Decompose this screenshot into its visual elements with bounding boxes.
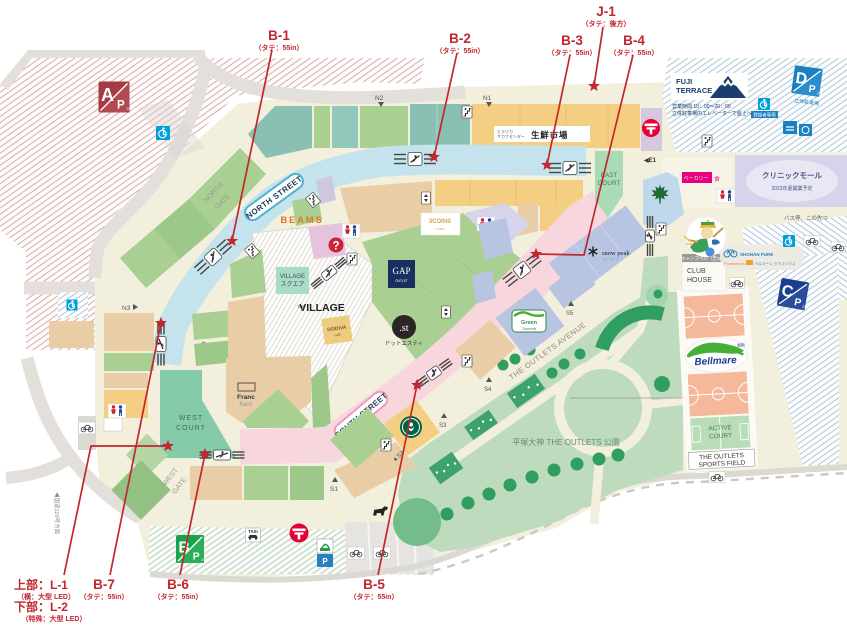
svg-text:◀国道129号方面: ◀国道129号方面 [53,492,61,535]
svg-text:snow peak: snow peak [602,250,630,257]
svg-text:下部：L-2: 下部：L-2 [14,599,68,614]
svg-text:（タテ：55in）: （タテ：55in） [435,46,484,55]
svg-text:A: A [101,85,114,105]
svg-text:Franc: Franc [237,394,255,401]
svg-text:2023年夏開業予定: 2023年夏開業予定 [771,185,812,192]
svg-text:B-5: B-5 [363,577,385,592]
svg-text:B-4: B-4 [623,33,645,48]
svg-text:湘南: 湘南 [737,341,745,347]
svg-text:TERRACE: TERRACE [676,86,712,95]
svg-text:S1: S1 [330,486,338,493]
svg-text:平塚大神 THE OUTLETS 公園: 平塚大神 THE OUTLETS 公園 [512,437,620,447]
svg-text:D: D [794,70,808,88]
svg-text:クリニックモール: クリニックモール [762,170,822,180]
svg-text:生鮮市場: 生鮮市場 [531,130,568,140]
svg-text:B-7: B-7 [93,577,115,592]
svg-text:COURT: COURT [709,432,732,440]
svg-text:B-2: B-2 [449,31,471,46]
svg-text:CLUB: CLUB [687,268,706,275]
svg-text:+plus: +plus [436,227,445,231]
svg-text:（タテ：後方）: （タテ：後方） [582,19,631,28]
svg-text:N1: N1 [483,95,492,102]
svg-text:（特殊：大型 LED）: （特殊：大型 LED） [22,614,87,623]
svg-text:（タテ：55in）: （タテ：55in） [254,43,303,52]
svg-text:Powered by: Powered by [724,261,745,266]
svg-text:Summit: Summit [522,326,536,331]
svg-text:SHONAN PURE: SHONAN PURE [740,252,773,257]
svg-text:S5: S5 [566,311,574,317]
svg-text:VILLAGE: VILLAGE [280,274,305,280]
svg-text:HOUSE: HOUSE [687,277,712,284]
svg-text:franc: franc [239,402,252,408]
svg-text:N3: N3 [122,305,131,312]
svg-text:WEST: WEST [179,415,203,422]
svg-text:J-1: J-1 [596,4,616,19]
svg-text:VILLAGE: VILLAGE [299,302,345,314]
svg-text:COURT: COURT [176,425,206,432]
svg-text:サカナセンター: サカナセンター [497,133,525,139]
svg-text:立体駐車場内エレベーターで屋上へ: 立体駐車場内エレベーターで屋上へ [672,110,752,117]
svg-text:P: P [117,100,125,112]
svg-text:OUTLET: OUTLET [395,279,408,283]
svg-text:TAXI: TAXI [248,529,257,534]
svg-text:GAP: GAP [392,266,410,276]
svg-text:24h: 24h [126,106,133,111]
svg-text:P: P [322,557,328,566]
svg-text:（タテ：55in）: （タテ：55in） [547,48,596,57]
svg-text:スクエア: スクエア [280,281,304,288]
svg-text:.st: .st [399,323,408,334]
svg-text:ベーカリー: ベーカリー [683,176,708,182]
svg-text:B-6: B-6 [167,577,189,592]
svg-text:ベルマーレ クラブハウス: ベルマーレ クラブハウス [755,261,796,266]
svg-text:（タテ：55in）: （タテ：55in） [349,592,398,601]
svg-text:B-3: B-3 [561,33,583,48]
svg-text:Bellmare: Bellmare [694,355,737,368]
svg-text:N2: N2 [375,95,384,102]
svg-text:（タテ：55in）: （タテ：55in） [153,592,202,601]
svg-text:24h: 24h [816,90,823,96]
svg-text:バス停、この先⇒: バス停、この先⇒ [784,214,829,222]
svg-text:?: ? [332,241,339,253]
svg-text:B-1: B-1 [268,28,290,43]
svg-text:営業時間 10：00～20：00: 営業時間 10：00～20：00 [672,103,731,110]
svg-text:上部：L-1: 上部：L-1 [14,577,68,592]
svg-text:S3: S3 [439,423,447,429]
svg-text:FUJI: FUJI [676,77,692,86]
svg-text:◀E1: ◀E1 [643,157,657,164]
svg-text:S4: S4 [484,387,492,393]
svg-text:P: P [193,552,200,563]
svg-text:24h: 24h [201,557,208,562]
svg-text:食: 食 [714,175,720,183]
svg-text:（タテ：55in）: （タテ：55in） [79,592,128,601]
svg-text:スノーピーク: スノーピーク [603,257,619,261]
svg-text:BEAMS: BEAMS [280,215,323,226]
svg-text:3COINS: 3COINS [429,219,451,225]
svg-text:THE: THE [297,304,305,309]
svg-text:登録者専用: 登録者専用 [753,112,776,119]
svg-text:ACTIVE: ACTIVE [708,424,732,432]
svg-text:ドットエスティ: ドットエスティ [385,340,423,347]
svg-text:（タテ：55in）: （タテ：55in） [609,48,658,57]
